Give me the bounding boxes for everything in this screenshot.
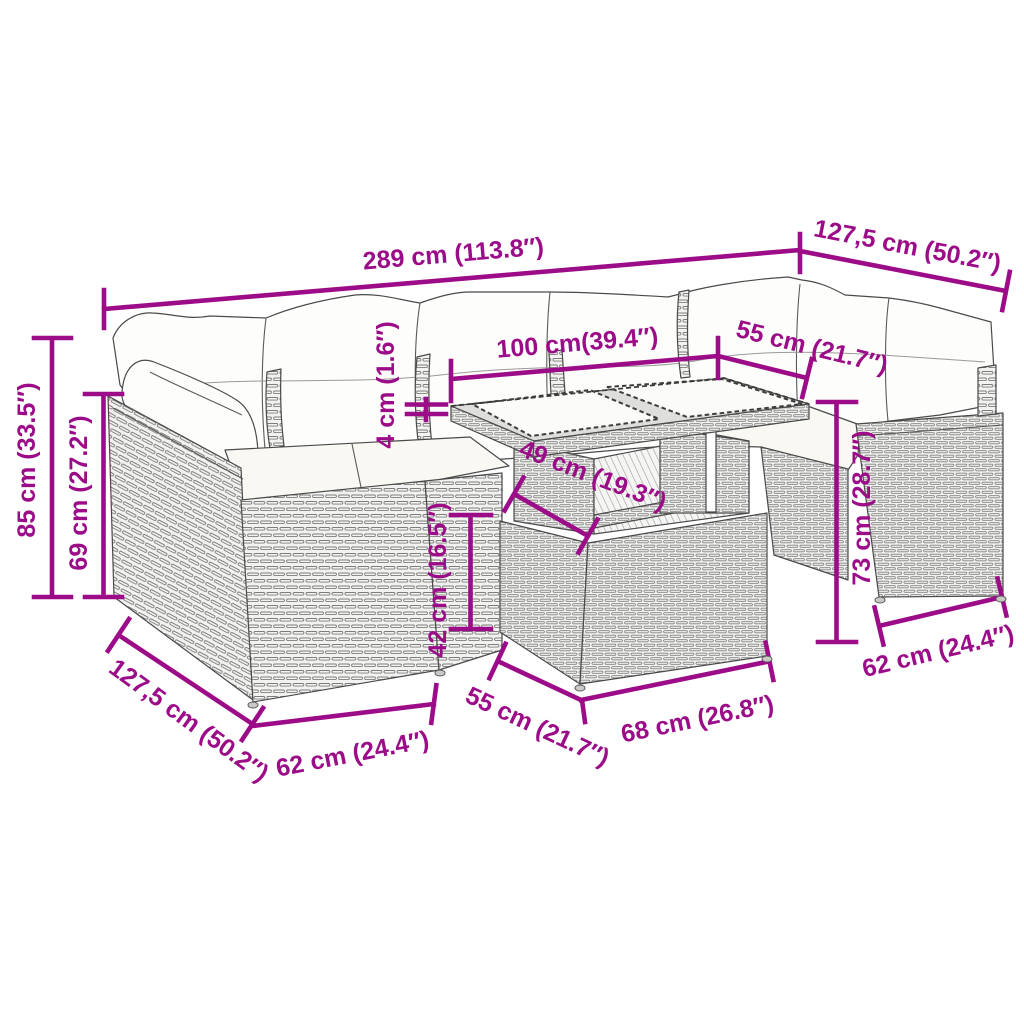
svg-text:69 cm (27.2″): 69 cm (27.2″) — [65, 415, 93, 570]
svg-text:42 cm (16.5″): 42 cm (16.5″) — [424, 502, 452, 657]
svg-text:85 cm (33.5″): 85 cm (33.5″) — [13, 382, 41, 537]
svg-text:4 cm (1.6″): 4 cm (1.6″) — [372, 321, 400, 448]
svg-text:73 cm (28.7″): 73 cm (28.7″) — [848, 430, 876, 585]
